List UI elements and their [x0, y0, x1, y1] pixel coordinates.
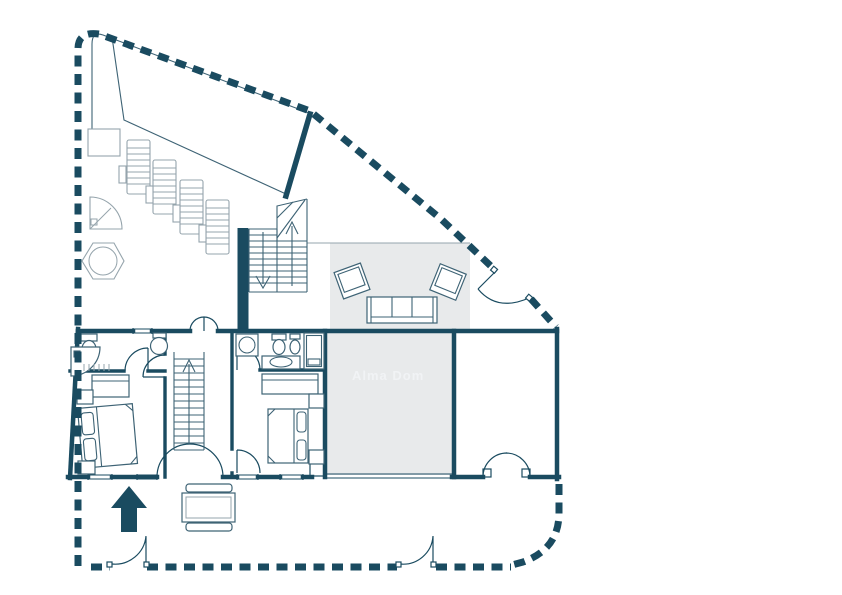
shower-stall-icon: [304, 333, 324, 369]
sun-lounger: [206, 200, 229, 254]
bench: [186, 523, 232, 531]
gray-room-floor: [327, 333, 453, 475]
pedestal-sink-icon: [151, 333, 168, 355]
bedroom2-door: [237, 450, 260, 473]
upper-diagonal-wall: [286, 114, 310, 196]
planter-box: [88, 129, 120, 156]
bathroom-2: [236, 333, 324, 369]
stair-up-arrow: [286, 222, 298, 286]
toilet-icon: [272, 334, 286, 355]
double-bed: [268, 409, 308, 463]
lounger-side-table: [199, 225, 206, 242]
right-room-french-door: [483, 453, 530, 477]
entry-double-door: [190, 317, 218, 331]
bedroom-1: [77, 375, 138, 474]
terrace-boundary-line: [92, 34, 309, 152]
double-bed: [77, 404, 137, 469]
window: [280, 474, 303, 480]
bench: [186, 484, 232, 492]
washbasin-icon: [236, 334, 258, 356]
floor-plan-canvas: Alma Dom: [0, 0, 842, 595]
window: [237, 474, 258, 480]
vanity-icon: [262, 356, 300, 369]
bidet-icon: [290, 334, 300, 354]
lounger-side-table: [173, 205, 180, 222]
boundary-gate: [396, 536, 436, 567]
boundary-gate: [478, 266, 533, 303]
hexagon-table: [82, 243, 124, 279]
outdoor-shower: [90, 197, 122, 229]
window: [88, 474, 112, 480]
window: [133, 328, 152, 334]
nightstand: [309, 450, 324, 464]
patio-table-set: [182, 484, 235, 531]
hall-french-door: [157, 444, 223, 477]
lounger-side-table: [146, 186, 153, 203]
nightstand: [309, 394, 324, 408]
property-boundary: [78, 34, 559, 567]
sofa: [367, 297, 437, 323]
entrance-arrow: [111, 486, 147, 532]
stair-wall: [238, 228, 249, 331]
hall-staircase: [174, 352, 204, 450]
wardrobe: [262, 374, 318, 394]
boundary-gate: [107, 536, 149, 567]
outdoor-staircase: [238, 199, 308, 331]
floor-plan-page: Alma Dom: [0, 0, 842, 595]
bedroom-2: [262, 374, 324, 464]
wardrobe: [92, 375, 129, 397]
lounger-side-table: [119, 166, 126, 183]
stair-down-arrow: [256, 232, 270, 288]
watermark-text: Alma Dom: [352, 368, 424, 383]
bedroom1-door: [143, 355, 165, 377]
